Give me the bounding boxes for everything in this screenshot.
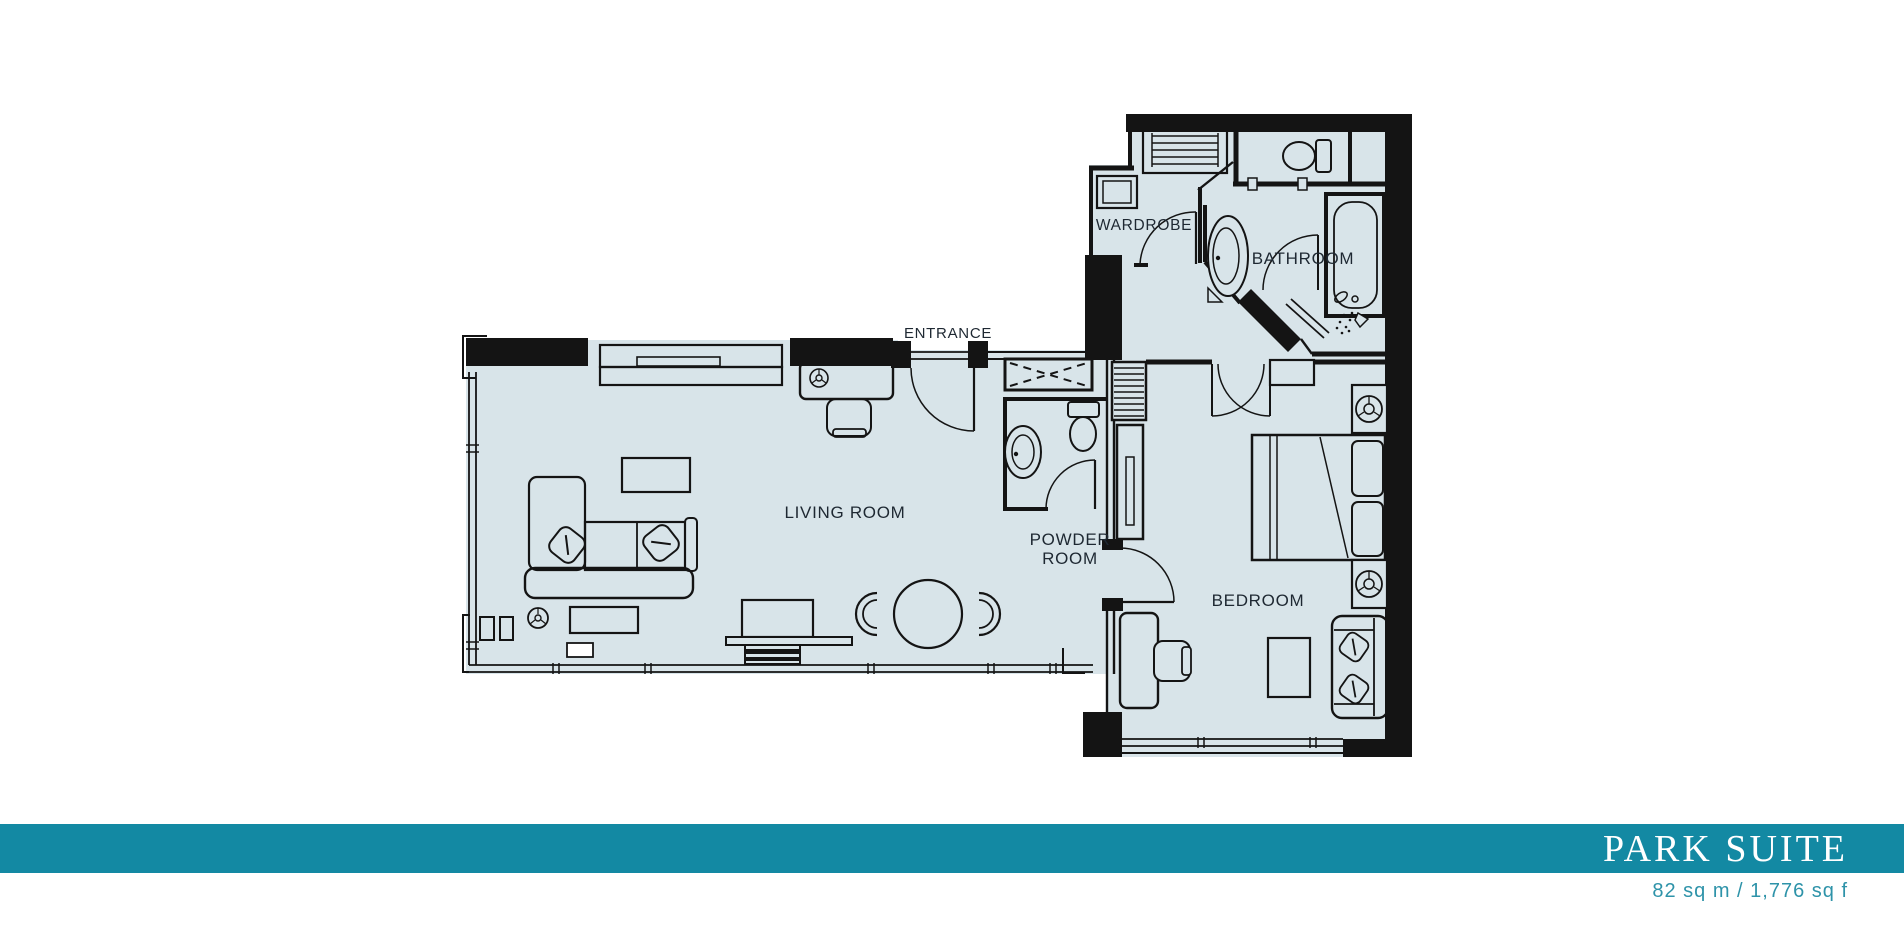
- entrance-label: ENTRANCE: [904, 324, 992, 343]
- floorplan-drawing: [0, 0, 1904, 952]
- suite-area: 82 sq m / 1,776 sq f: [1652, 880, 1848, 903]
- living-room-label: LIVING ROOM: [784, 503, 905, 522]
- luggage-rack: [1005, 359, 1092, 390]
- bathroom-sink-icon: [1208, 216, 1248, 296]
- bathroom-label: BATHROOM: [1252, 249, 1355, 268]
- powder-sink-icon: [1005, 426, 1041, 478]
- bathroom-wardrobe-floor: [1089, 114, 1412, 364]
- pillow: [1352, 441, 1383, 496]
- nightstand-top: [1352, 385, 1387, 433]
- louver-grille: [1112, 362, 1146, 420]
- nightstand-bottom: [1352, 560, 1387, 608]
- tv-panel: [1117, 425, 1143, 539]
- suite-title: PARK SUITE: [1603, 824, 1848, 873]
- floorplan-page: ENTRANCE WARDROBE BATHROOM LIVING ROOM P…: [0, 0, 1904, 952]
- powder-room-label: POWDER ROOM: [1010, 530, 1130, 568]
- toilet-icon: [1283, 140, 1331, 172]
- pillow: [1352, 502, 1383, 556]
- powder-toilet-icon: [1068, 402, 1099, 451]
- bedroom-label: BEDROOM: [1212, 591, 1305, 610]
- wardrobe-label: WARDROBE: [1096, 216, 1192, 235]
- floor-lamp-icon: [528, 608, 548, 628]
